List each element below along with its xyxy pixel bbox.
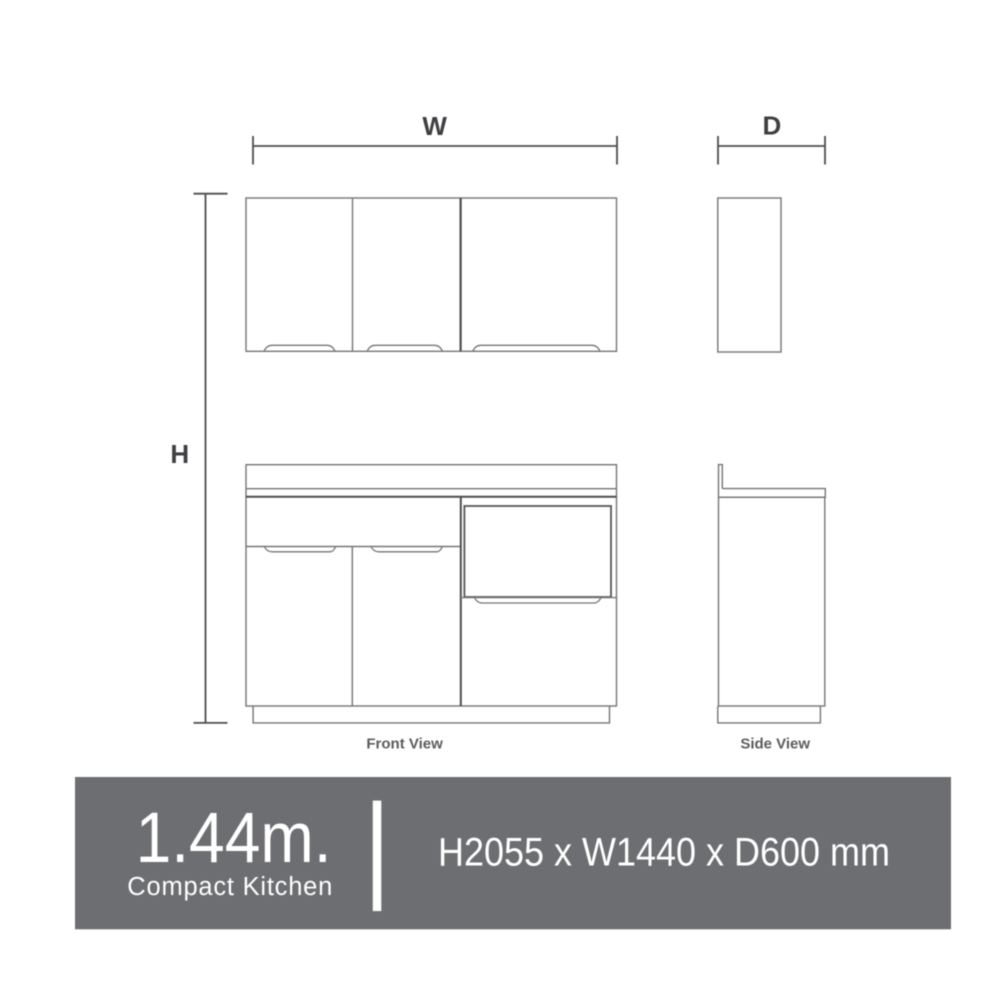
svg-text:W: W: [422, 111, 447, 141]
svg-text:H: H: [170, 439, 189, 469]
svg-text:D: D: [763, 111, 782, 141]
svg-text:Compact Kitchen: Compact Kitchen: [127, 873, 332, 901]
svg-text:Side View: Side View: [740, 736, 810, 753]
svg-text:Front View: Front View: [366, 736, 443, 753]
svg-text:1.44m.: 1.44m.: [136, 799, 332, 878]
svg-text:H2055 x W1440 x D600 mm: H2055 x W1440 x D600 mm: [438, 831, 890, 875]
